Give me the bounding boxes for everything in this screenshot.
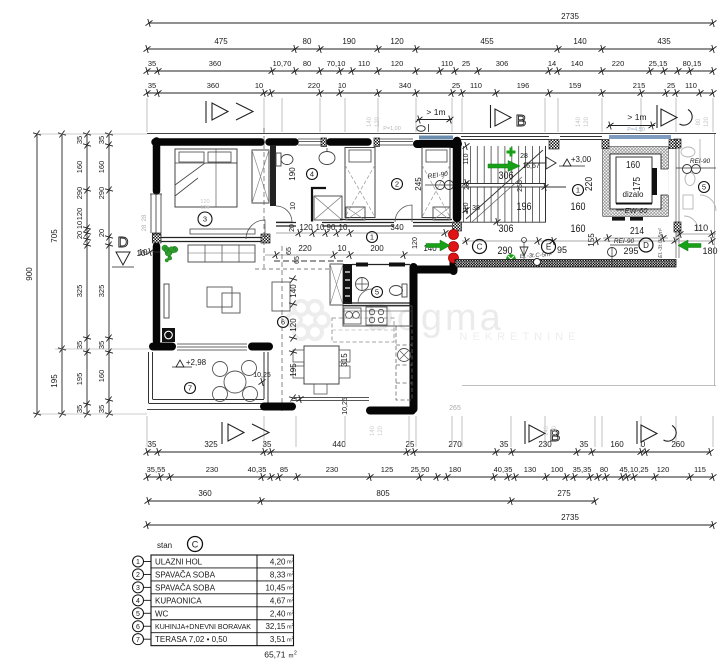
svg-text:2: 2 <box>395 180 399 189</box>
svg-text:1: 1 <box>576 186 580 195</box>
svg-text:E: E <box>546 243 551 252</box>
svg-text:28: 28 <box>142 224 148 231</box>
svg-text:10,70: 10,70 <box>273 59 292 68</box>
svg-text:El.-3t.C-5m²: El.-3t.C-5m² <box>658 228 664 258</box>
svg-text:> 1m: > 1m <box>627 112 646 122</box>
svg-text:160: 160 <box>626 160 640 171</box>
svg-text:7: 7 <box>136 637 140 644</box>
svg-text:195: 195 <box>289 363 298 377</box>
svg-text:90: 90 <box>327 223 336 232</box>
svg-text:25,50: 25,50 <box>411 465 430 474</box>
svg-text:EW-60: EW-60 <box>625 206 649 215</box>
svg-text:220: 220 <box>584 177 595 191</box>
svg-text:2: 2 <box>136 572 140 579</box>
svg-text:360: 360 <box>207 81 220 90</box>
svg-text:WC: WC <box>155 609 169 618</box>
svg-text:140: 140 <box>289 284 298 298</box>
svg-text:> 1m: > 1m <box>426 107 445 117</box>
svg-text:NEKRETNINE: NEKRETNINE <box>460 331 581 343</box>
svg-text:10: 10 <box>290 202 297 210</box>
svg-text:3,51: 3,51 <box>270 635 286 644</box>
svg-text:900: 900 <box>25 267 34 281</box>
svg-text:196: 196 <box>517 201 532 213</box>
svg-text:38: 38 <box>472 205 480 212</box>
svg-text:440: 440 <box>332 440 346 449</box>
svg-text:315: 315 <box>340 353 349 367</box>
svg-text:110: 110 <box>685 81 697 90</box>
svg-text:100: 100 <box>551 465 564 474</box>
svg-text:35: 35 <box>97 341 106 349</box>
svg-text:80,15: 80,15 <box>683 59 702 68</box>
svg-text:7: 7 <box>188 384 192 393</box>
svg-text:325: 325 <box>97 285 106 298</box>
svg-text:6: 6 <box>136 624 140 631</box>
svg-text:115: 115 <box>694 465 706 474</box>
svg-text:35: 35 <box>97 405 106 413</box>
svg-text:ULAZNI HOL: ULAZNI HOL <box>155 557 203 566</box>
svg-text:214: 214 <box>630 226 644 237</box>
svg-text:+3,00: +3,00 <box>571 155 592 164</box>
svg-text:190: 190 <box>288 167 297 181</box>
svg-text:40,35: 40,35 <box>248 465 267 474</box>
svg-text:340: 340 <box>399 81 412 90</box>
svg-text:260: 260 <box>671 440 685 449</box>
svg-text:80: 80 <box>696 118 702 125</box>
svg-text:265: 265 <box>449 405 461 412</box>
svg-text:C: C <box>192 540 199 550</box>
svg-text:35: 35 <box>75 341 84 349</box>
svg-text:REI-90: REI-90 <box>690 158 711 165</box>
svg-text:35: 35 <box>75 136 84 144</box>
svg-text:TERASA 7,02 • 0,50: TERASA 7,02 • 0,50 <box>155 635 228 644</box>
svg-text:180: 180 <box>702 246 717 256</box>
svg-text:10,45: 10,45 <box>265 583 286 592</box>
svg-text:180: 180 <box>449 465 462 474</box>
svg-text:160: 160 <box>610 440 624 449</box>
svg-text:3: 3 <box>136 585 140 592</box>
svg-text:160: 160 <box>97 370 106 383</box>
svg-text:35: 35 <box>97 136 106 144</box>
svg-text:120: 120 <box>552 425 558 436</box>
svg-text:120: 120 <box>75 208 84 221</box>
svg-text:SPAVAČA SOBA: SPAVAČA SOBA <box>155 583 216 592</box>
svg-text:290: 290 <box>75 187 84 200</box>
svg-text:2735: 2735 <box>561 12 579 21</box>
svg-text:125: 125 <box>381 465 394 474</box>
svg-text:120: 120 <box>390 37 404 46</box>
svg-text:220: 220 <box>612 59 625 68</box>
svg-text:306: 306 <box>499 170 514 182</box>
svg-text:2,40: 2,40 <box>270 609 286 618</box>
svg-text:25,15: 25,15 <box>649 59 668 68</box>
svg-text:80: 80 <box>303 37 312 46</box>
svg-text:110: 110 <box>358 59 370 68</box>
svg-text:290: 290 <box>97 187 106 200</box>
svg-text:dizalo: dizalo <box>623 190 644 199</box>
svg-text:85: 85 <box>280 465 288 474</box>
svg-text:45,10,25: 45,10,25 <box>619 465 648 474</box>
svg-text:70,10: 70,10 <box>327 59 346 68</box>
svg-text:140: 140 <box>544 425 550 436</box>
svg-text:220: 220 <box>298 244 312 253</box>
svg-text:35: 35 <box>500 440 509 449</box>
svg-text:+2,98: +2,98 <box>186 358 207 367</box>
svg-text:28: 28 <box>142 214 148 221</box>
svg-text:5: 5 <box>375 288 379 297</box>
svg-text:35: 35 <box>75 405 84 413</box>
svg-text:120: 120 <box>299 223 313 232</box>
svg-text:306: 306 <box>499 223 514 235</box>
svg-text:35,35: 35,35 <box>573 465 592 474</box>
svg-text:110: 110 <box>441 59 453 68</box>
svg-text:20: 20 <box>289 224 296 232</box>
svg-text:10: 10 <box>338 244 347 253</box>
svg-text:D: D <box>643 241 649 250</box>
svg-text:20: 20 <box>97 229 106 237</box>
svg-text:195: 195 <box>50 374 59 388</box>
svg-text:m: m <box>289 654 294 660</box>
svg-text:295: 295 <box>623 246 638 256</box>
svg-text:3: 3 <box>203 215 207 224</box>
svg-text:65: 65 <box>294 256 301 264</box>
svg-text:35: 35 <box>148 59 156 68</box>
svg-text:2735: 2735 <box>561 513 579 522</box>
svg-text:475: 475 <box>214 37 228 46</box>
svg-text:80: 80 <box>600 465 608 474</box>
svg-text:140: 140 <box>367 116 373 127</box>
svg-text:14: 14 <box>548 59 556 68</box>
svg-text:159: 159 <box>569 81 582 90</box>
svg-text:B: B <box>516 113 527 130</box>
svg-text:10,25: 10,25 <box>342 397 349 415</box>
svg-text:32,15: 32,15 <box>265 622 286 631</box>
svg-text:200: 200 <box>370 244 384 253</box>
svg-text:KUPAONICA: KUPAONICA <box>155 596 202 605</box>
svg-text:160: 160 <box>75 161 84 174</box>
svg-text:REI-90: REI-90 <box>614 238 635 245</box>
svg-text:196: 196 <box>517 81 530 90</box>
svg-text:140: 140 <box>571 59 584 68</box>
svg-text:230: 230 <box>326 465 339 474</box>
svg-text:C: C <box>477 243 483 252</box>
svg-text:255: 255 <box>517 180 524 192</box>
svg-text:270: 270 <box>448 440 462 449</box>
svg-text:220: 220 <box>308 81 321 90</box>
svg-text:6: 6 <box>281 318 285 327</box>
svg-text:10,25: 10,25 <box>253 372 271 379</box>
svg-text:80: 80 <box>303 59 311 68</box>
svg-text:25: 25 <box>667 81 675 90</box>
svg-text:120: 120 <box>391 59 404 68</box>
svg-text:28: 28 <box>520 153 528 160</box>
svg-text:stan: stan <box>157 541 172 550</box>
svg-text:360: 360 <box>198 489 212 498</box>
svg-text:10: 10 <box>316 223 325 232</box>
svg-text:10: 10 <box>75 221 84 229</box>
svg-text:130: 130 <box>524 465 537 474</box>
svg-text:110: 110 <box>694 223 708 233</box>
svg-text:P=1,00: P=1,00 <box>383 126 401 132</box>
svg-text:140: 140 <box>576 116 582 127</box>
svg-text:155: 155 <box>587 233 596 247</box>
svg-text:20: 20 <box>75 231 84 239</box>
svg-text:D: D <box>118 234 129 251</box>
svg-text:140: 140 <box>370 425 376 436</box>
svg-text:10: 10 <box>255 81 263 90</box>
svg-text:35: 35 <box>148 440 157 449</box>
svg-text:160: 160 <box>571 201 586 213</box>
svg-text:65: 65 <box>286 247 293 255</box>
svg-text:4,67: 4,67 <box>270 596 286 605</box>
svg-text:40,35: 40,35 <box>494 465 513 474</box>
svg-text:215: 215 <box>633 81 646 90</box>
svg-text:110: 110 <box>470 81 482 90</box>
svg-text:245: 245 <box>414 177 423 191</box>
svg-text:306: 306 <box>496 59 509 68</box>
svg-text:4: 4 <box>136 598 140 605</box>
svg-text:120: 120 <box>657 465 670 474</box>
svg-text:340: 340 <box>390 223 404 232</box>
svg-text:10: 10 <box>139 248 148 257</box>
svg-text:4,20: 4,20 <box>270 557 286 566</box>
svg-text:8,33: 8,33 <box>270 570 286 579</box>
svg-text:25: 25 <box>452 81 460 90</box>
svg-text:25: 25 <box>406 440 415 449</box>
svg-text:120: 120 <box>375 116 381 127</box>
svg-text:360: 360 <box>209 59 222 68</box>
svg-text:230: 230 <box>206 465 219 474</box>
svg-text:35: 35 <box>148 81 156 90</box>
svg-text:435: 435 <box>657 37 671 46</box>
svg-text:25: 25 <box>462 59 470 68</box>
svg-text:160: 160 <box>571 223 586 235</box>
svg-text:275: 275 <box>557 489 571 498</box>
svg-text:16,67: 16,67 <box>522 163 540 170</box>
svg-text:126: 126 <box>200 205 209 211</box>
svg-text:5: 5 <box>136 611 140 618</box>
svg-text:KUHINJA+DNEVNI BORAVAK: KUHINJA+DNEVNI BORAVAK <box>155 622 251 631</box>
svg-text:195: 195 <box>75 373 84 386</box>
svg-text:705: 705 <box>50 229 59 243</box>
svg-text:805: 805 <box>376 489 390 498</box>
svg-text:95: 95 <box>557 245 567 255</box>
svg-text:120: 120 <box>412 237 419 249</box>
svg-text:1: 1 <box>136 559 140 566</box>
svg-text:120: 120 <box>584 116 590 127</box>
svg-text:35,55: 35,55 <box>147 465 166 474</box>
svg-text:110: 110 <box>463 153 470 164</box>
svg-text:35: 35 <box>580 440 589 449</box>
svg-text:160: 160 <box>97 161 106 174</box>
svg-text:2: 2 <box>294 651 297 657</box>
svg-text:4: 4 <box>310 170 314 179</box>
svg-text:120: 120 <box>704 116 710 127</box>
svg-text:190: 190 <box>342 37 356 46</box>
svg-text:120: 120 <box>289 318 298 332</box>
svg-text:10: 10 <box>338 81 346 90</box>
svg-text:140: 140 <box>573 37 587 46</box>
svg-text:1: 1 <box>370 233 374 242</box>
svg-text:175: 175 <box>632 177 643 191</box>
svg-text:65,71: 65,71 <box>264 650 286 660</box>
svg-text:325: 325 <box>204 440 218 449</box>
svg-text:325: 325 <box>75 285 84 298</box>
svg-text:120: 120 <box>378 425 384 436</box>
svg-text:5: 5 <box>702 183 706 192</box>
svg-text:455: 455 <box>480 37 494 46</box>
svg-text:P=4,50: P=4,50 <box>627 127 645 133</box>
svg-text:SPAVAČA SOBA: SPAVAČA SOBA <box>155 570 216 579</box>
